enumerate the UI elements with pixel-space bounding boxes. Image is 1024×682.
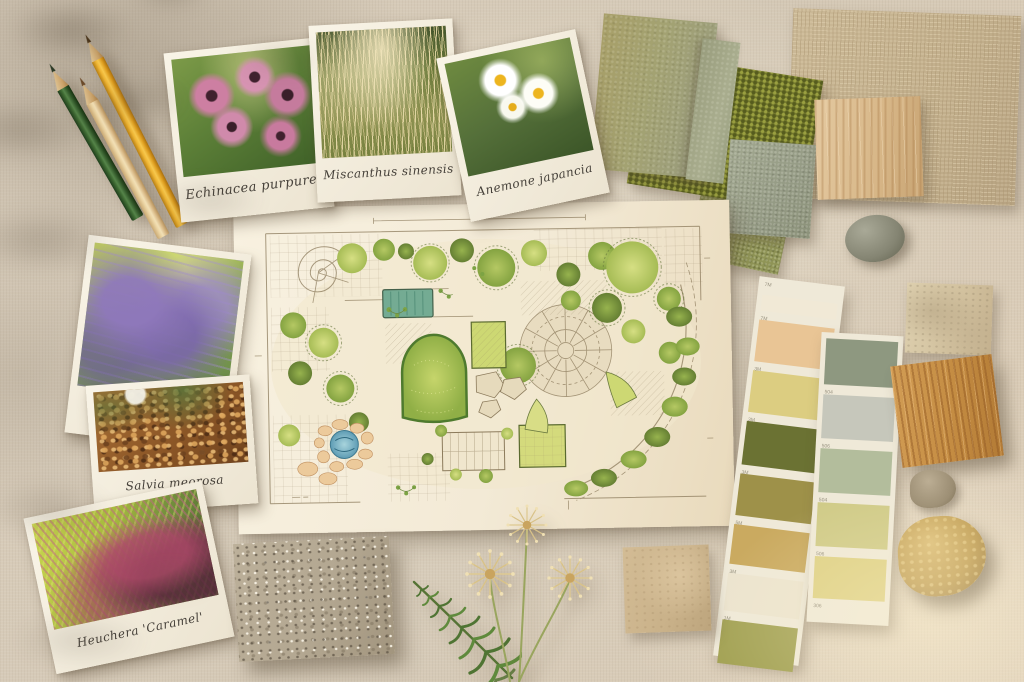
sandstone-tile <box>623 545 712 634</box>
paint-strip-right: 504 506 504 506 306 <box>806 332 903 626</box>
garden-plan-drawing <box>233 200 735 535</box>
teak-wood-sample <box>890 354 1004 468</box>
paint-chip <box>813 556 887 602</box>
oak-wood-sample <box>814 96 923 200</box>
paint-chip <box>821 394 895 442</box>
wool-swatch <box>724 139 816 239</box>
polaroid-echinacea: Echinacea purpurea <box>164 37 335 222</box>
granite-slab <box>233 536 395 662</box>
tan-fieldstone <box>895 513 988 599</box>
dried-flowers <box>435 498 605 682</box>
travertine-block <box>905 283 993 356</box>
grey-pebble <box>842 211 908 266</box>
pencil-lead <box>83 34 91 44</box>
polaroid-heuchera: Heuchera 'Caramel' <box>23 481 234 674</box>
pencil-lead <box>47 63 55 73</box>
green-pencil <box>43 61 143 222</box>
photo-caption: Miscanthus sinensis <box>322 152 454 193</box>
garden-moodboard-photo: Echinacea purpurea Miscanthus sinensis A… <box>0 0 1024 682</box>
plant-photo-salvia-meorosa <box>93 382 248 472</box>
garden-plan-sheet <box>233 200 735 535</box>
plant-photo-miscanthus <box>316 26 452 159</box>
plant-photo-echinacea <box>171 45 323 177</box>
paint-chip <box>818 448 892 496</box>
pencil-lead <box>77 77 85 87</box>
paint-chip <box>815 502 889 550</box>
polaroid-anemone: Anemone japancia <box>436 29 610 222</box>
paint-chip <box>824 338 898 388</box>
polaroid-miscanthus: Miscanthus sinensis <box>308 18 461 202</box>
paint-chip <box>717 619 798 672</box>
heart-pebble <box>910 470 956 508</box>
